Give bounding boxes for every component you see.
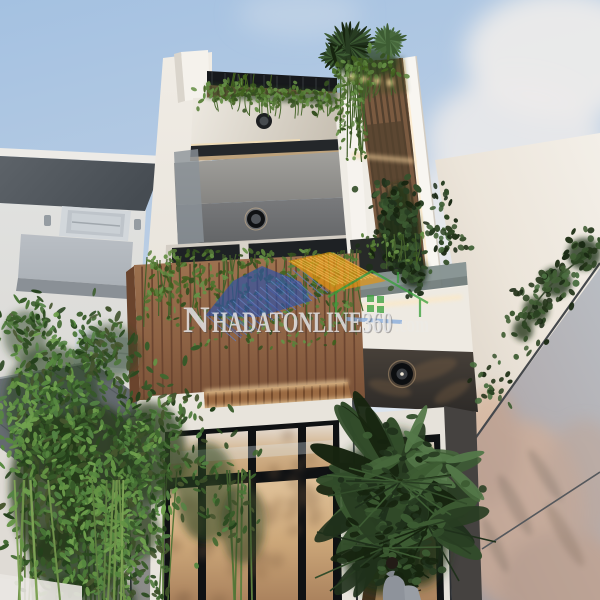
svg-text:N: N — [183, 300, 210, 341]
svg-text:HADATONLINE360: HADATONLINE360 — [212, 306, 392, 339]
svg-text:.com: .com — [395, 312, 429, 338]
